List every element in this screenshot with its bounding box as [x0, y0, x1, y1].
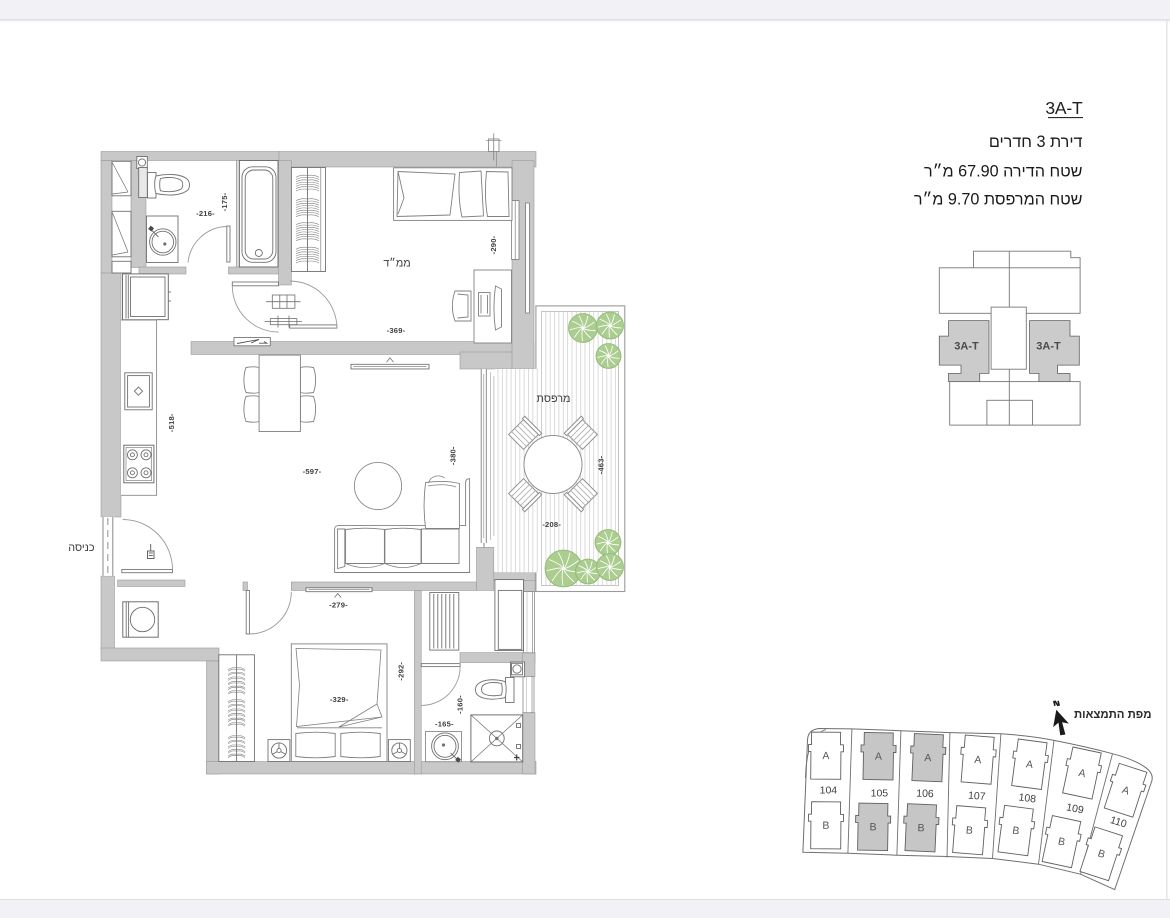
svg-text:-292-: -292- — [396, 662, 405, 681]
svg-text:-175-: -175- — [220, 192, 229, 211]
svg-text:-380-: -380- — [449, 446, 458, 465]
svg-text:כניסה: כניסה — [68, 542, 95, 554]
svg-text:A: A — [875, 751, 882, 763]
svg-text:שטח המרפסת 9.70 מ״ר: שטח המרפסת 9.70 מ״ר — [914, 190, 1083, 208]
svg-text:A: A — [924, 752, 932, 764]
svg-text:-597-: -597- — [303, 467, 322, 476]
svg-text:B: B — [965, 824, 973, 837]
svg-text:-463-: -463- — [596, 455, 605, 474]
svg-text:104: 104 — [820, 785, 838, 797]
svg-text:108: 108 — [1018, 791, 1037, 805]
svg-text:-279-: -279- — [329, 601, 348, 610]
svg-text:3A-T: 3A-T — [1045, 98, 1083, 118]
svg-text:105: 105 — [871, 787, 889, 799]
svg-text:B: B — [917, 822, 925, 834]
svg-text:-369-: -369- — [387, 326, 406, 335]
svg-text:-160-: -160- — [456, 695, 465, 714]
svg-text:ממ״ד: ממ״ד — [383, 258, 410, 270]
svg-text:-208-: -208- — [542, 520, 561, 529]
svg-text:A: A — [974, 754, 982, 767]
svg-text:מרפסת: מרפסת — [537, 393, 571, 405]
svg-text:107: 107 — [968, 790, 986, 803]
svg-text:3A-T: 3A-T — [954, 341, 979, 353]
svg-text:106: 106 — [916, 788, 934, 801]
svg-text:מפת התמצאות: מפת התמצאות — [1074, 709, 1152, 721]
svg-text:-165-: -165- — [435, 720, 454, 729]
svg-text:-216-: -216- — [196, 209, 215, 218]
svg-text:דירת 3 חדרים: דירת 3 חדרים — [989, 133, 1083, 151]
svg-text:-290-: -290- — [489, 235, 498, 254]
svg-text:B: B — [822, 820, 829, 832]
svg-text:-329-: -329- — [330, 695, 349, 704]
svg-text:3A-T: 3A-T — [1036, 341, 1061, 353]
svg-text:A: A — [822, 750, 829, 762]
svg-text:B: B — [869, 821, 876, 833]
svg-text:שטח הדירה 67.90 מ״ר: שטח הדירה 67.90 מ״ר — [924, 163, 1083, 181]
svg-text:-518-: -518- — [167, 413, 176, 432]
